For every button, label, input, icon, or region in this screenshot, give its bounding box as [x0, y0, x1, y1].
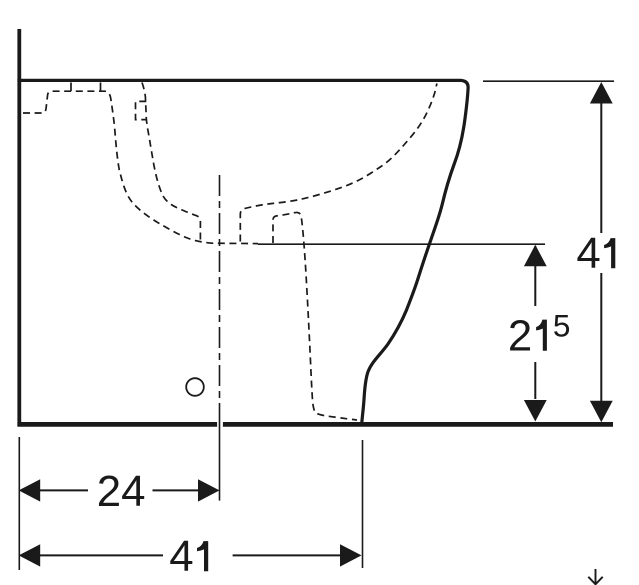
svg-text:24: 24 — [97, 467, 146, 516]
svg-text:4: 4 — [576, 229, 600, 278]
svg-text:5: 5 — [553, 308, 571, 344]
svg-text:4: 4 — [169, 532, 193, 581]
svg-text:2: 2 — [508, 312, 532, 361]
